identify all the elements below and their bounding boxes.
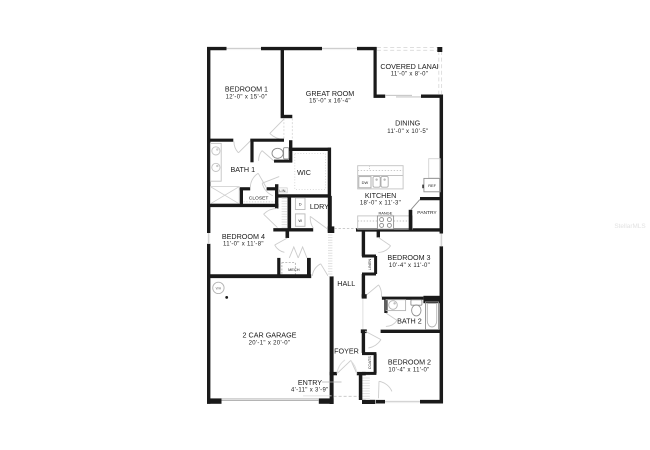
- svg-text:W: W: [298, 218, 302, 223]
- svg-text:BEDROOM 2: BEDROOM 2: [388, 357, 431, 366]
- svg-text:BEDROOM 1: BEDROOM 1: [225, 85, 268, 94]
- svg-text:DW: DW: [362, 180, 369, 185]
- svg-text:LDRY: LDRY: [310, 202, 329, 211]
- svg-text:18'-0" x 11'-3": 18'-0" x 11'-3": [360, 201, 401, 207]
- svg-text:4'-11" x 3'-9": 4'-11" x 3'-9": [291, 388, 329, 394]
- svg-text:ENTRY: ENTRY: [298, 378, 322, 387]
- svg-text:2 CAR GARAGE: 2 CAR GARAGE: [243, 330, 297, 339]
- svg-text:10'-4" x 11'-0": 10'-4" x 11'-0": [389, 263, 430, 269]
- svg-text:RANGE: RANGE: [378, 211, 392, 216]
- svg-text:BEDROOM 4: BEDROOM 4: [222, 232, 265, 241]
- svg-text:20'-1" x 20'-0": 20'-1" x 20'-0": [249, 341, 291, 347]
- svg-text:REF: REF: [428, 183, 436, 188]
- svg-text:D: D: [299, 202, 302, 207]
- svg-text:PANTRY: PANTRY: [417, 210, 437, 216]
- svg-text:12'-0" x 15'-0": 12'-0" x 15'-0": [226, 95, 268, 101]
- svg-text:MECH: MECH: [288, 267, 300, 272]
- svg-text:15'-0" x 16'-4": 15'-0" x 16'-4": [309, 99, 351, 105]
- svg-text:GREAT ROOM: GREAT ROOM: [306, 89, 354, 98]
- svg-text:10'-4" x 11'-0": 10'-4" x 11'-0": [388, 367, 429, 373]
- svg-text:WIC: WIC: [297, 168, 311, 177]
- svg-text:BEDROOM 3: BEDROOM 3: [387, 253, 430, 262]
- svg-text:WH: WH: [216, 287, 222, 291]
- svg-text:BATH 1: BATH 1: [230, 165, 255, 174]
- svg-text:BATH 2: BATH 2: [397, 316, 422, 325]
- svg-text:11'-0" x 11'-8": 11'-0" x 11'-8": [223, 242, 264, 248]
- svg-text:11'-0" x 8'-0": 11'-0" x 8'-0": [391, 72, 429, 78]
- svg-text:COATS: COATS: [367, 356, 372, 370]
- svg-text:KITCHEN: KITCHEN: [365, 191, 397, 200]
- svg-text:11'-0" x 10'-5": 11'-0" x 10'-5": [387, 129, 428, 135]
- svg-text:StellarMLS: StellarMLS: [614, 223, 645, 230]
- svg-text:FOYER: FOYER: [334, 347, 359, 356]
- svg-text:DINING: DINING: [395, 118, 421, 127]
- svg-text:LIN.: LIN.: [279, 188, 286, 193]
- svg-text:HALL: HALL: [337, 279, 355, 288]
- svg-text:LINEN: LINEN: [367, 259, 372, 271]
- svg-text:COVERED LANAI: COVERED LANAI: [380, 62, 438, 71]
- svg-text:CLOSET: CLOSET: [249, 196, 269, 202]
